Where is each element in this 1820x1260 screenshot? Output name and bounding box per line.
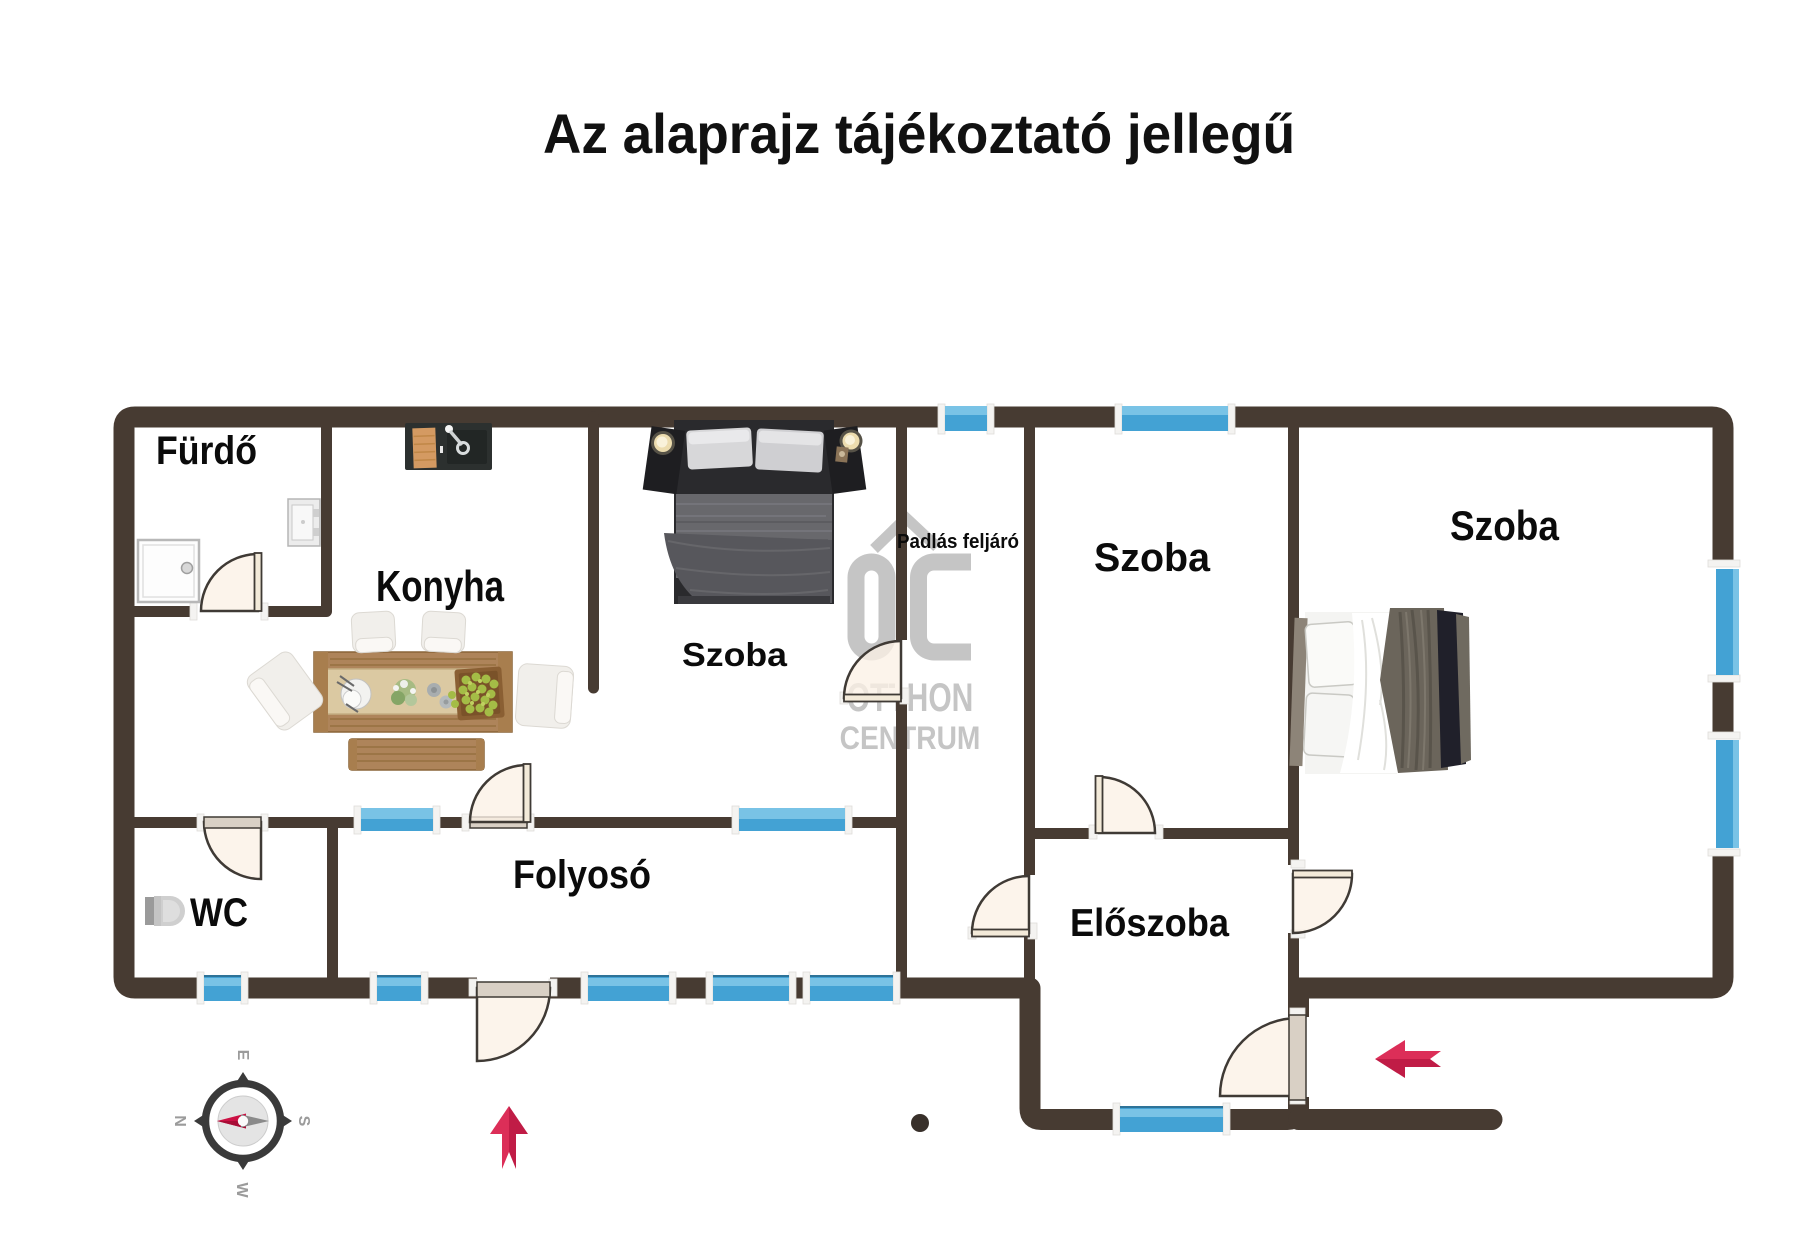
svg-text:Fürdő: Fürdő — [156, 429, 257, 473]
svg-text:S: S — [295, 1116, 312, 1127]
svg-text:Szoba: Szoba — [682, 636, 788, 673]
svg-text:CENTRUM: CENTRUM — [840, 721, 981, 756]
svg-text:Szoba: Szoba — [1094, 536, 1211, 580]
svg-text:Folyosó: Folyosó — [513, 853, 651, 897]
svg-text:Előszoba: Előszoba — [1070, 902, 1229, 945]
svg-text:E: E — [234, 1050, 251, 1061]
svg-text:W: W — [233, 1182, 250, 1198]
svg-text:Az alaprajz tájékoztató jelleg: Az alaprajz tájékoztató jellegű — [543, 102, 1295, 165]
svg-text:Konyha: Konyha — [376, 562, 504, 611]
svg-text:N: N — [171, 1115, 188, 1127]
svg-text:WC: WC — [190, 891, 248, 935]
svg-text:Szoba: Szoba — [1450, 502, 1560, 549]
svg-text:Padlás feljáró: Padlás feljáró — [897, 531, 1019, 553]
